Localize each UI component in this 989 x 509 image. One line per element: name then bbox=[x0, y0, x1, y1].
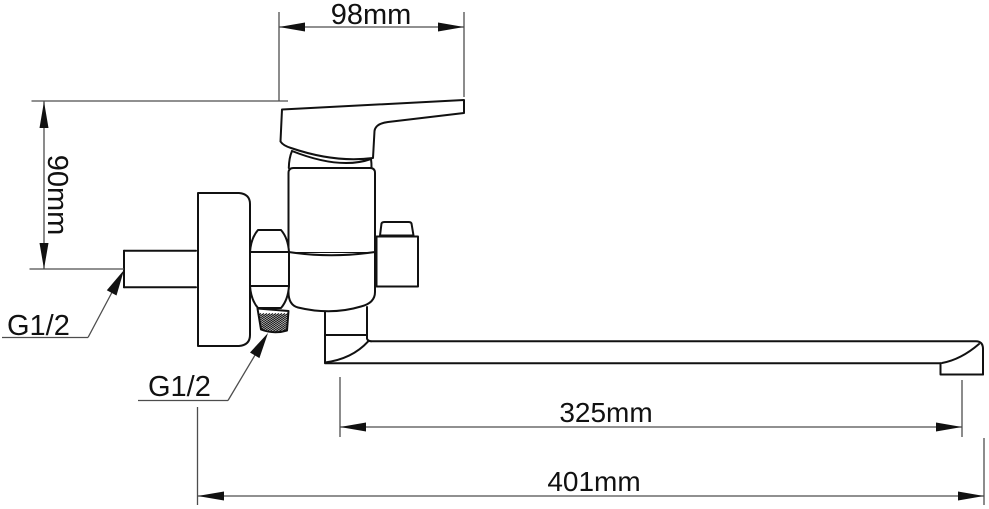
arrowhead-left bbox=[198, 492, 225, 501]
arrowhead-right bbox=[438, 23, 464, 32]
inlet-pipe bbox=[124, 251, 196, 288]
faucet-dimension-drawing: 98mm 90mm G1/2 G1/2 325mm bbox=[0, 0, 989, 509]
faucet-drawing bbox=[124, 100, 983, 375]
wall-plate bbox=[198, 193, 250, 346]
mounting-nut bbox=[250, 230, 289, 308]
spout-tube bbox=[325, 341, 983, 374]
dimension-label-98mm: 98mm bbox=[331, 0, 412, 31]
arrowhead-bottom bbox=[40, 243, 49, 269]
diverter-knob-cap bbox=[380, 222, 414, 236]
diverter-knob bbox=[377, 222, 419, 287]
arrowhead-right bbox=[936, 423, 962, 432]
leader-arrowhead bbox=[107, 270, 124, 296]
leader-wall-inlet-thread: G1/2 bbox=[2, 270, 124, 342]
leader-arrowhead bbox=[250, 333, 268, 358]
spout-outlet bbox=[941, 363, 984, 374]
handle bbox=[281, 100, 465, 159]
arrowhead-left bbox=[340, 423, 366, 432]
dimension-325mm: 325mm bbox=[340, 377, 962, 437]
dimension-label-401mm: 401mm bbox=[547, 466, 640, 497]
drawing-page: 98mm 90mm G1/2 G1/2 325mm bbox=[0, 0, 989, 509]
thread-label-outlet: G1/2 bbox=[148, 371, 211, 403]
arrowhead-left bbox=[279, 23, 305, 32]
dimension-98mm: 98mm bbox=[279, 0, 464, 101]
arrowhead-top bbox=[40, 102, 49, 129]
valve-body-lower bbox=[289, 252, 376, 311]
spout-tip-curve bbox=[942, 344, 979, 363]
arrowhead-right bbox=[958, 492, 984, 501]
valve-body-upper bbox=[289, 168, 376, 252]
spout-connector bbox=[325, 307, 371, 363]
dimension-label-325mm: 325mm bbox=[559, 397, 652, 428]
dimension-label-90mm: 90mm bbox=[41, 155, 73, 236]
